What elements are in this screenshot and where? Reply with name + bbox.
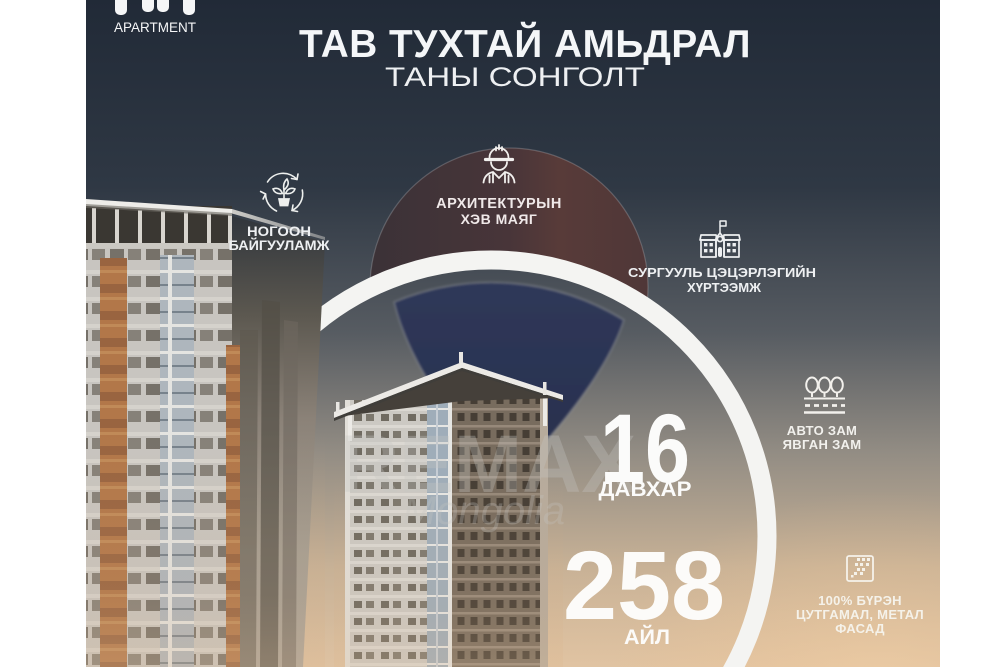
svg-text:100% БҮРЭН: 100% БҮРЭН <box>818 593 902 608</box>
svg-text:Mongolia: Mongolia <box>403 489 565 533</box>
svg-text:НОГООН: НОГООН <box>247 224 311 239</box>
svg-text:258: 258 <box>563 531 725 640</box>
svg-text:ЦУТГАМАЛ, МЕТАЛ: ЦУТГАМАЛ, МЕТАЛ <box>796 607 924 622</box>
svg-text:ФАСАД: ФАСАД <box>835 621 885 636</box>
svg-text:ХЭВ МАЯГ: ХЭВ МАЯГ <box>461 211 538 227</box>
svg-text:ТАНЫ СОНГОЛТ: ТАНЫ СОНГОЛТ <box>385 62 645 92</box>
svg-text:АВТО ЗАМ: АВТО ЗАМ <box>787 423 857 438</box>
svg-text:ДАВХАР: ДАВХАР <box>599 477 692 501</box>
svg-text:БАЙГУУЛАМЖ: БАЙГУУЛАМЖ <box>229 238 331 253</box>
svg-text:АРХИТЕКТУРЫН: АРХИТЕКТУРЫН <box>436 196 562 212</box>
svg-text:ХҮРТЭЭМЖ: ХҮРТЭЭМЖ <box>687 280 761 295</box>
svg-text:АЙЛ: АЙЛ <box>624 624 670 649</box>
svg-text:ЯВГАН ЗАМ: ЯВГАН ЗАМ <box>783 437 862 452</box>
svg-text:APARTMENT: APARTMENT <box>114 20 196 35</box>
svg-text:ТАВ ТУХТАЙ АМЬДРАЛ: ТАВ ТУХТАЙ АМЬДРАЛ <box>299 21 751 66</box>
svg-text:СУРГУУЛЬ ЦЭЦЭРЛЭГИЙН: СУРГУУЛЬ ЦЭЦЭРЛЭГИЙН <box>628 265 816 280</box>
